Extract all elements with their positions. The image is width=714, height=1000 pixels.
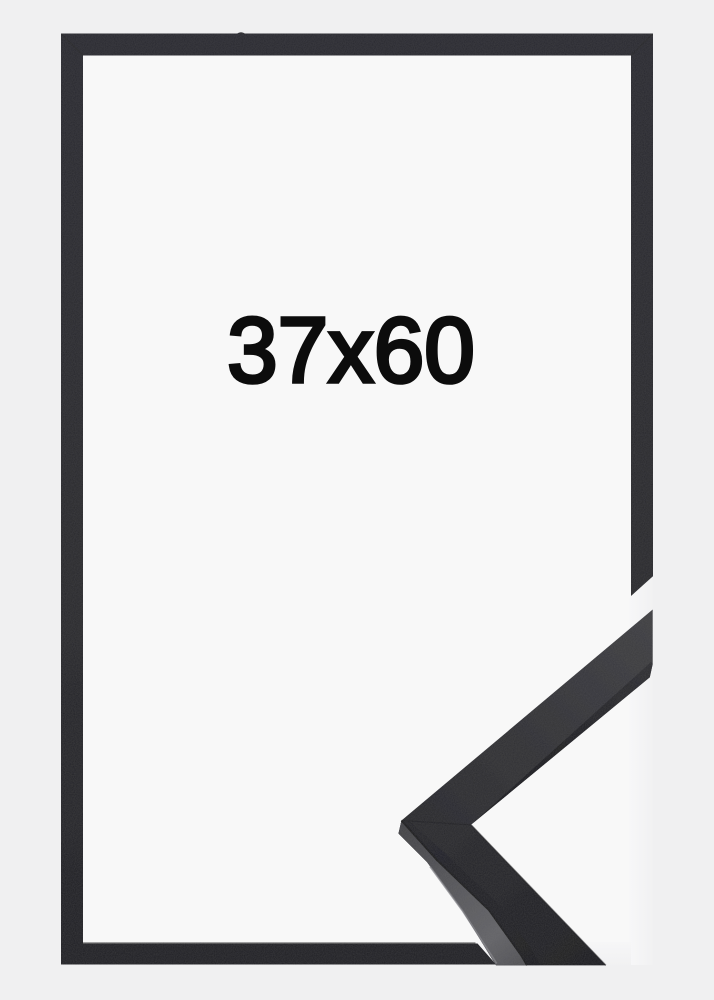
- svg-text:37x60: 37x60: [227, 299, 475, 402]
